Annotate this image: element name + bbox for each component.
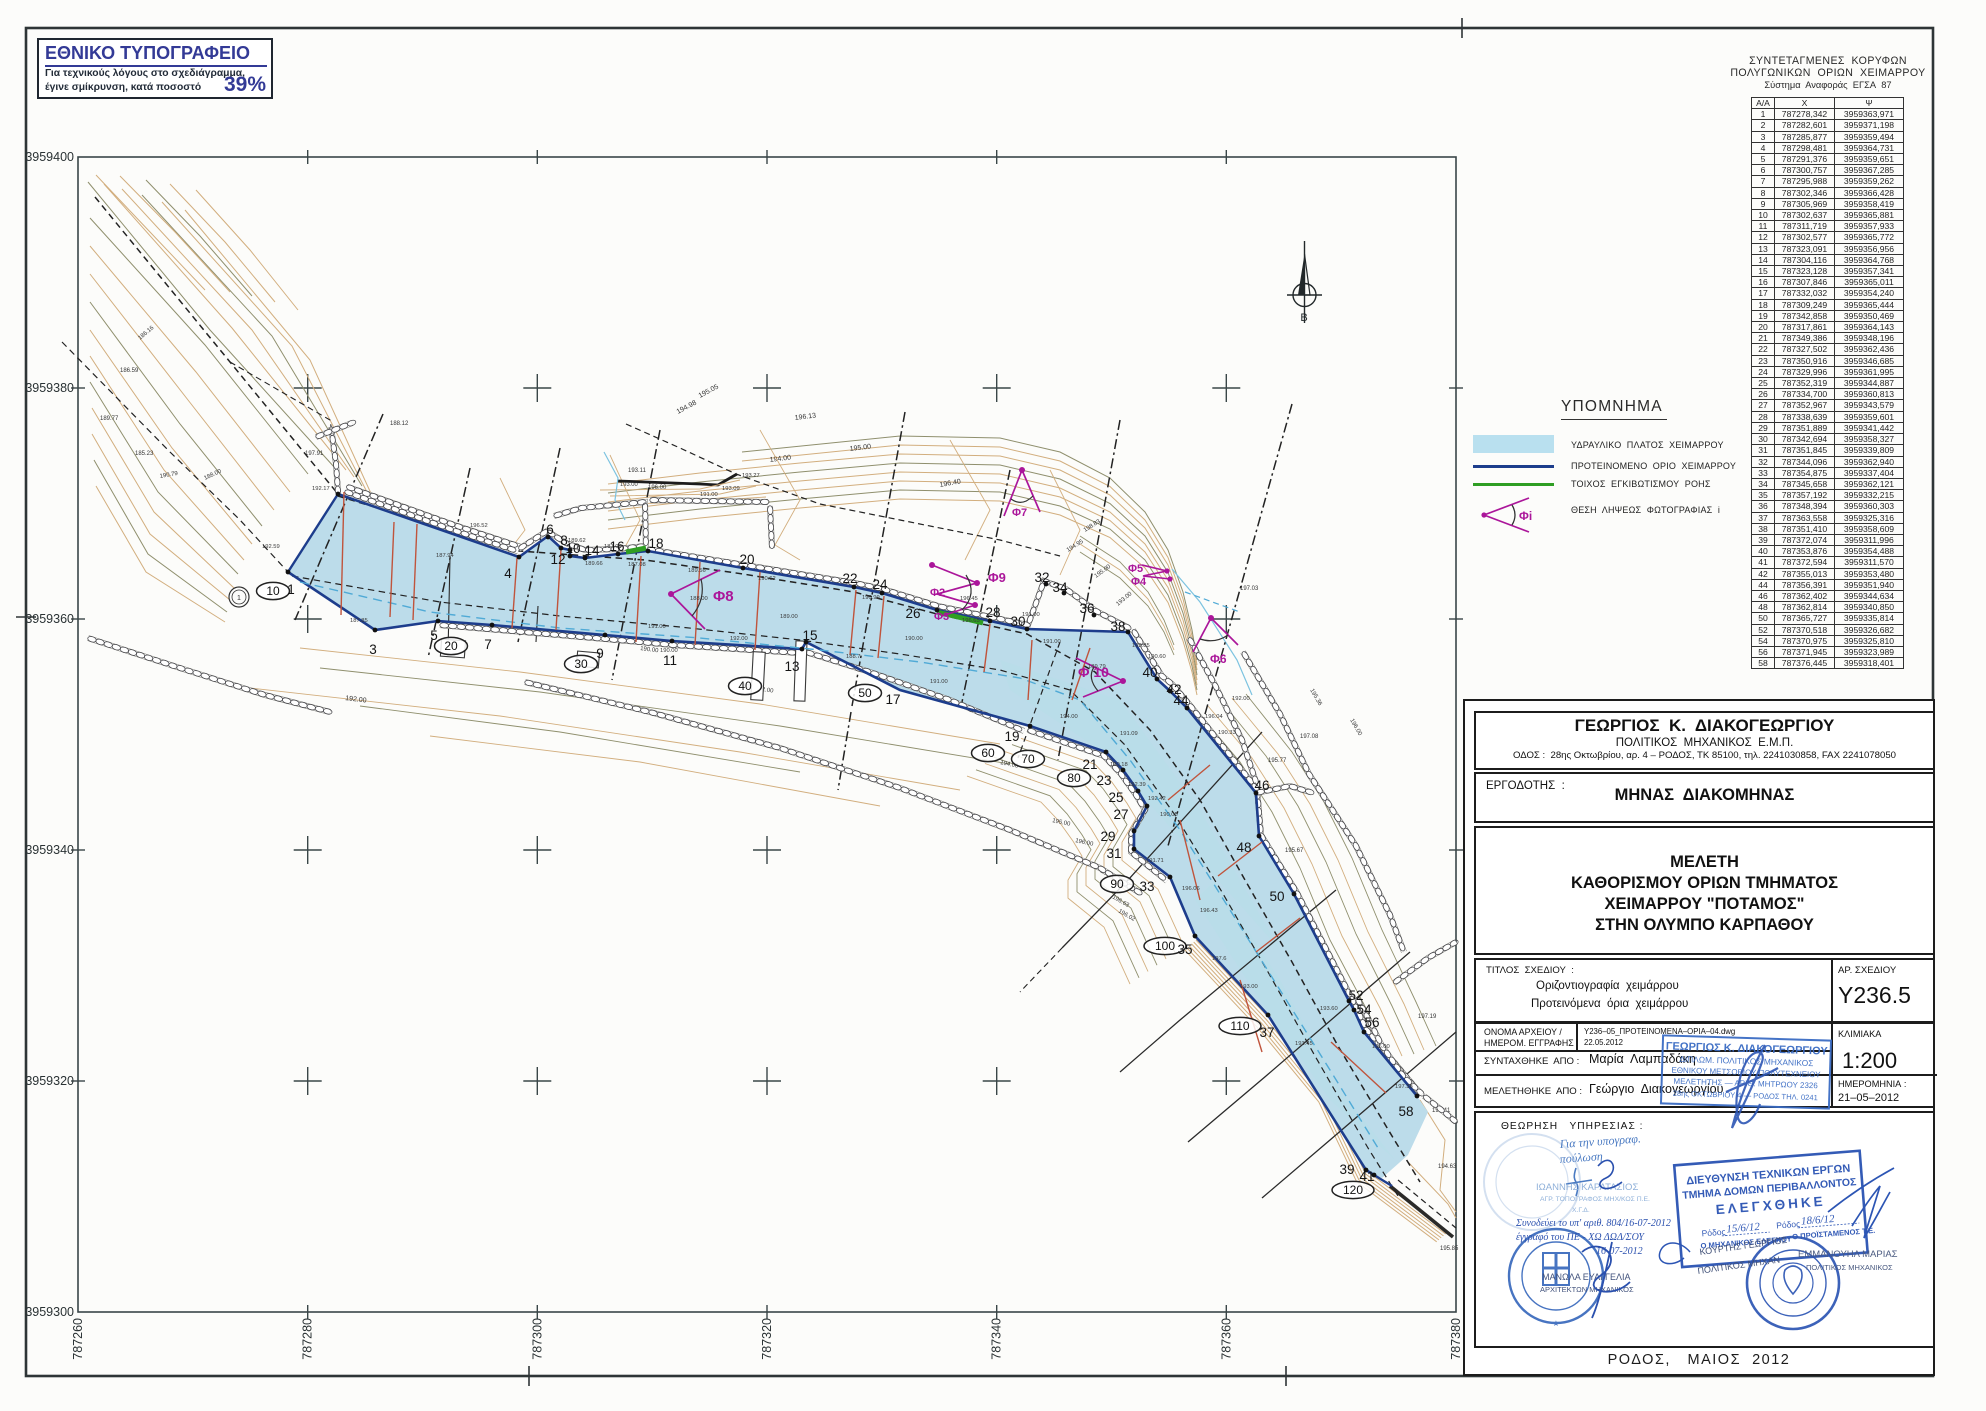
svg-text:★: ★ <box>1552 1319 1559 1328</box>
svg-text:Για την υπογραφ.: Για την υπογραφ. <box>1558 1131 1641 1151</box>
svg-text:Ρόδος: Ρόδος <box>1776 1219 1801 1231</box>
svg-text:ΠΟΛΙΤΙΚΟΣ ΜΗΧΑΝΙΚΟΣ: ΠΟΛΙΤΙΚΟΣ ΜΗΧΑΝΙΚΟΣ <box>1806 1263 1893 1272</box>
svg-text:ΜΑΝΩΛΑ ΕΥΑΓΓΕΛΙΑ: ΜΑΝΩΛΑ ΕΥΑΓΓΕΛΙΑ <box>1542 1272 1631 1282</box>
svg-text:πούλωση: πούλωση <box>1559 1149 1603 1166</box>
svg-text:Ο ΠΡΟΪΣΤΑΜΕΝΟΣ Τ.Ε.: Ο ΠΡΟΪΣΤΑΜΕΝΟΣ Τ.Ε. <box>1792 1226 1876 1242</box>
svg-text:ΕΜΜΑΝΟΥΗΛ ΜΑΡΙΑΣ: ΕΜΜΑΝΟΥΗΛ ΜΑΡΙΑΣ <box>1798 1249 1898 1260</box>
svg-text:Ρόδος: Ρόδος <box>1701 1227 1726 1239</box>
svg-text:ΙΩΑΝΝΗΣ ΚΑΡΑΤΑΣΙΟΣ: ΙΩΑΝΝΗΣ ΚΑΡΑΤΑΣΙΟΣ <box>1536 1182 1638 1193</box>
svg-text:ΑΓΡ. ΤΟΠΟΓΡΑΦΟΣ ΜΗΧ/ΚΟΣ Π.Ε.: ΑΓΡ. ΤΟΠΟΓΡΑΦΟΣ ΜΗΧ/ΚΟΣ Π.Ε. <box>1540 1196 1650 1203</box>
svg-text:Συνοδεύει το υπ' αριθ. 804/16-: Συνοδεύει το υπ' αριθ. 804/16-07-2012 <box>1515 1218 1671 1229</box>
svg-text:ΠΟΛΙΤΙΚΟΣ ΜΗΧΑΝ: ΠΟΛΙΤΙΚΟΣ ΜΗΧΑΝ <box>1697 1255 1781 1276</box>
svg-text:Χ.Γ.Δ.: Χ.Γ.Δ. <box>1572 1207 1590 1214</box>
svg-text:έγγραφό του ΠΕ - ΧΩ ΔΩΔ/ΣΟΥ: έγγραφό του ΠΕ - ΧΩ ΔΩΔ/ΣΟΥ <box>1516 1232 1645 1243</box>
